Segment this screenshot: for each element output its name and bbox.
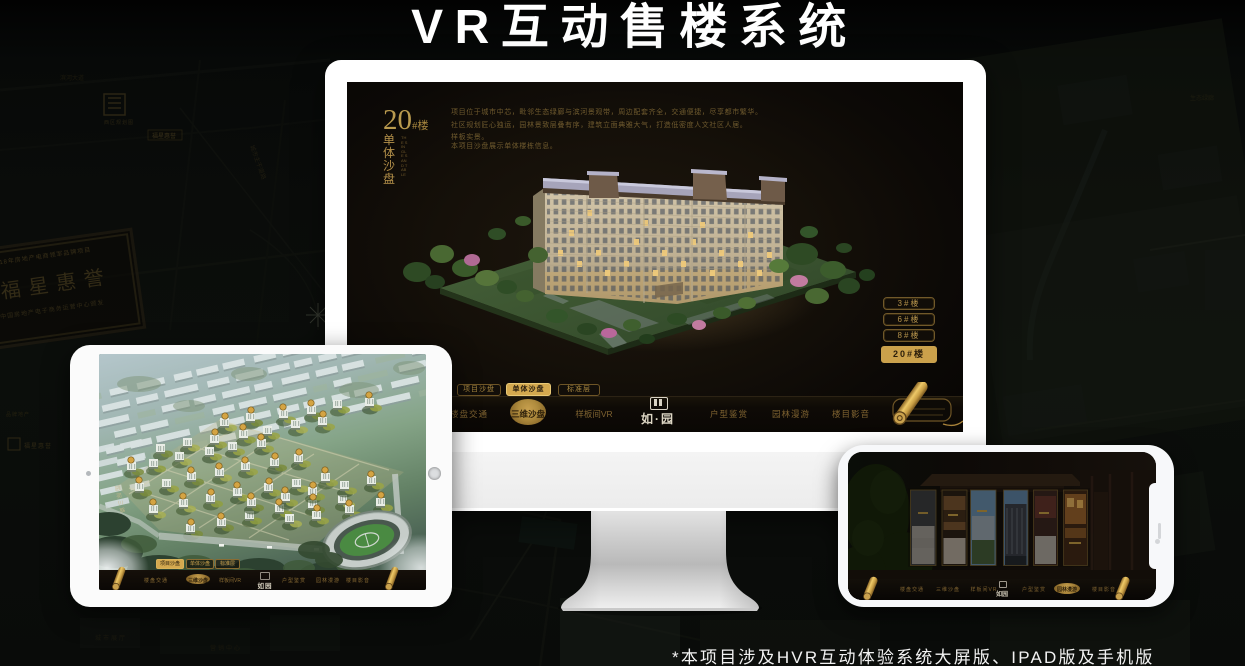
svg-text:福星惠誉: 福星惠誉	[152, 132, 176, 140]
svg-text:城市主干道路: 城市主干道路	[248, 144, 268, 181]
svg-text:生态绿廊: 生态绿廊	[1190, 94, 1214, 102]
svg-text:滨河大道: 滨河大道	[60, 74, 84, 82]
svg-text:营销中心: 营销中心	[210, 644, 242, 652]
svg-text:城市展厅: 城市展厅	[95, 634, 127, 642]
svg-text:品牌地产: 品牌地产	[6, 411, 30, 418]
svg-text:福星惠誉: 福星惠誉	[24, 442, 52, 450]
svg-text:西区规划图: 西区规划图	[104, 119, 134, 126]
